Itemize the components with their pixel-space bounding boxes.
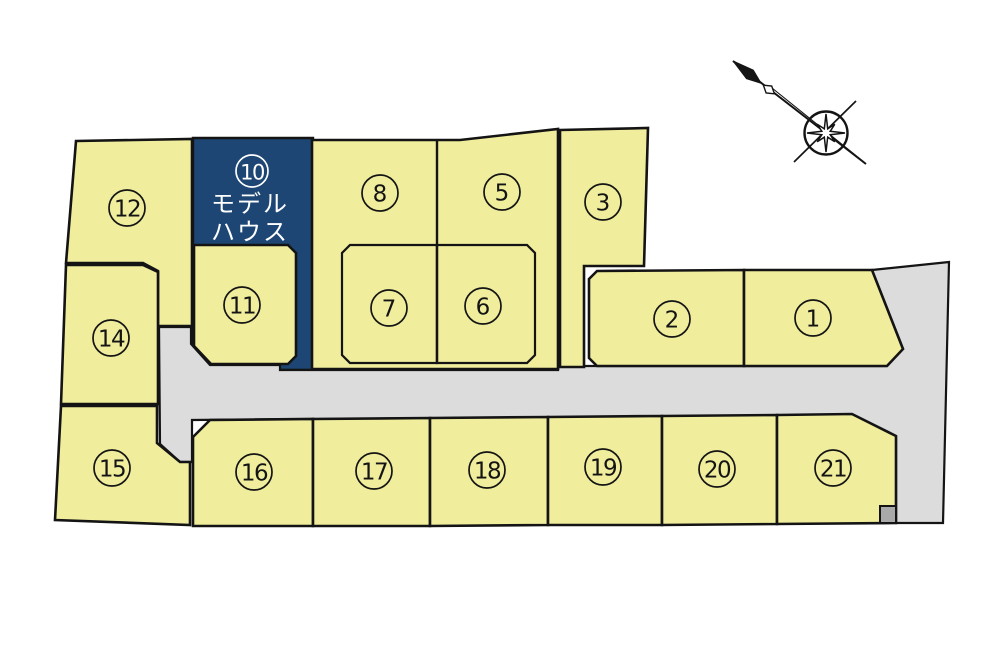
site-plan-svg: 12108531411762115161718192021モデルハウス: [0, 0, 1000, 667]
lot-2-number: 2: [665, 308, 680, 334]
lot-6-number: 6: [476, 295, 491, 321]
lot-16-number: 16: [241, 461, 268, 487]
lot-8-number: 8: [373, 182, 388, 208]
compass-arrowhead: [733, 61, 761, 83]
lot-7-number: 7: [382, 297, 397, 323]
lot-20-number: 20: [704, 458, 731, 484]
lot-5-number: 5: [495, 181, 510, 207]
model-house-label-line-1: モデル: [211, 190, 289, 218]
lot-15-number: 15: [99, 457, 125, 483]
compass-shaft-diamond: [763, 85, 774, 94]
subdivision-lot-map: 12108531411762115161718192021モデルハウス: [0, 0, 1000, 667]
lot-11-number: 11: [229, 294, 255, 320]
lot-18-number: 18: [474, 459, 501, 485]
lot-10-number: 10: [240, 161, 264, 185]
lot-21-number: 21: [820, 457, 846, 483]
lot-10-badge: 10: [236, 155, 268, 187]
lot-17-number: 17: [361, 460, 387, 486]
model-house-label-line-2: ハウス: [211, 218, 289, 246]
lot-12-number: 12: [114, 197, 140, 223]
compass-rose-icon: [733, 61, 866, 164]
lot-19-number: 19: [590, 456, 617, 482]
lot-3-number: 3: [596, 191, 611, 217]
lot-1-number: 1: [806, 307, 821, 333]
lot-14-number: 14: [98, 327, 125, 353]
corner-marker: [880, 506, 896, 523]
